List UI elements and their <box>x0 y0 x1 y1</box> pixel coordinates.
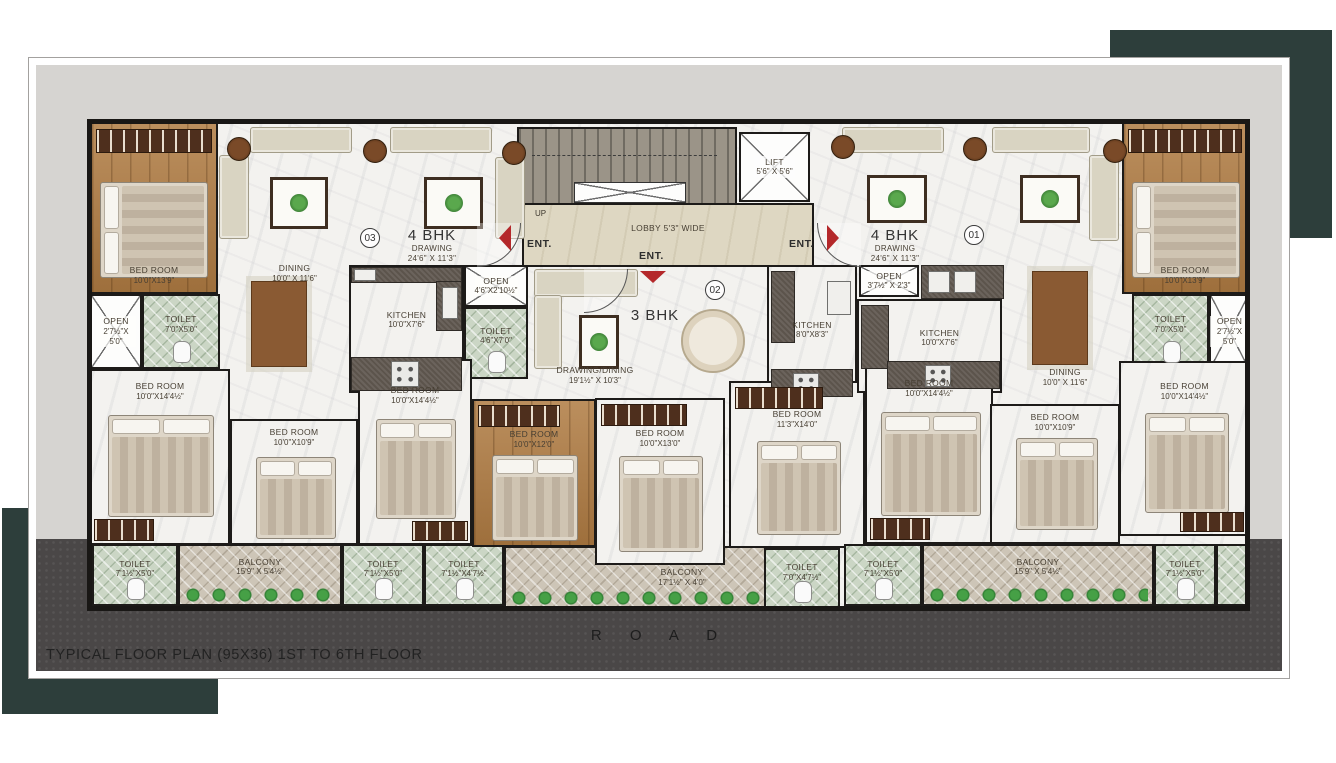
dining-table <box>1032 271 1088 365</box>
open-01-right: OPEN2'7½"X 5'0" <box>1209 294 1250 369</box>
toilet-02-right: TOILET7'0"X4'7½" <box>764 548 840 609</box>
planter-row <box>510 590 766 605</box>
sofa <box>219 155 249 239</box>
up-label: UP <box>535 209 546 218</box>
room-label: BED ROOM10'0"X13'0" <box>597 428 723 449</box>
room-label: BED ROOM10'0"X14'4½" <box>867 378 991 399</box>
balcony-02-label: BALCONY17'1½" X 4'0" <box>627 567 737 588</box>
open-03-mid: OPEN4'6"X2'10½" <box>464 265 528 307</box>
sofa <box>390 127 492 153</box>
toilet-fixture <box>456 578 474 600</box>
room-label: TOILET7'1½"X5'0" <box>864 559 903 580</box>
unit-01-type: 4 BHK DRAWING24'6" X 11'3" <box>850 227 940 265</box>
balcony-03: BALCONY15'9" X 5'4½" <box>178 544 342 606</box>
room-label: OPEN4'6"X2'10½" <box>475 276 518 297</box>
toilet-03-left: TOILET7'0"X5'0" <box>142 294 220 369</box>
room-label: BED ROOM10'0"X14'4½" <box>92 381 228 402</box>
sofa <box>842 127 944 153</box>
room-label: TOILET7'1½"X5'0" <box>116 559 155 580</box>
bed <box>757 441 841 535</box>
toilet-fixture <box>875 578 893 600</box>
lobby-label: LOBBY 5'3" WIDE <box>631 223 705 234</box>
rug <box>1020 175 1080 223</box>
unit-03-number: 03 <box>360 228 380 248</box>
plan-page: R O A D TYPICAL FLOOR PLAN (95X36) 1ST T… <box>28 57 1290 679</box>
room-label: KITCHEN10'0"X7'6" <box>387 310 426 331</box>
lift-label: LIFT5'6" X 5'6" <box>754 156 794 179</box>
toilet-01-top: TOILET7'0"X5'0" <box>1132 294 1209 369</box>
toilet-01-b2: TOILET7'1½"X5'0" <box>1154 544 1216 606</box>
room-label: TOILET7'1½"X5'0" <box>1166 559 1205 580</box>
bedroom-01-top: BED ROOM10'0"X13'9" <box>1122 122 1248 294</box>
side-table <box>963 137 987 161</box>
building: UP LIFT5'6" X 5'6" LOBBY 5'3" WIDE ENT. … <box>87 119 1250 611</box>
stove <box>391 361 419 387</box>
wardrobe <box>1128 129 1242 153</box>
bed <box>1145 413 1229 513</box>
planter-row <box>184 587 336 602</box>
side-table <box>831 135 855 159</box>
room-label: TOILET7'0"X5'0" <box>1155 314 1187 335</box>
sofa <box>534 295 562 369</box>
toilet-fixture <box>488 351 506 373</box>
side-table <box>227 137 251 161</box>
sofa <box>992 127 1090 153</box>
bed <box>881 412 981 516</box>
bedroom-01-right: BED ROOM10'0"X14'4½" <box>1119 361 1250 536</box>
toilet-fixture <box>127 578 145 600</box>
bedroom-01-mid: BED ROOM10'0"X10'9" <box>990 404 1120 544</box>
bed <box>376 419 456 519</box>
unit-03-type: 4 BHK DRAWING24'6" X 11'3" <box>387 227 477 265</box>
entrance-label-right: ENT. <box>789 238 814 250</box>
entrance-arrow-unit02 <box>640 271 666 283</box>
bedroom-02-right: BED ROOM11'3"X14'0" <box>729 381 865 548</box>
bedroom-03-mid: BED ROOM10'0"X10'9" <box>230 419 358 545</box>
wardrobe <box>1180 512 1244 532</box>
entrance-label-center: ENT. <box>639 250 664 262</box>
fridge <box>354 269 376 281</box>
toilet-fixture <box>173 341 191 363</box>
room-label: TOILET7'0"X5'0" <box>165 314 197 335</box>
stair-landing <box>574 182 686 203</box>
bed <box>492 455 578 541</box>
rug <box>867 175 927 223</box>
side-table <box>1103 139 1127 163</box>
sink <box>442 287 458 319</box>
rug <box>270 177 328 229</box>
bed <box>108 415 214 517</box>
lobby: LOBBY 5'3" WIDE <box>522 203 814 267</box>
kitchen-03: KITCHEN10'0"X7'6" <box>349 265 464 393</box>
toilet-fixture <box>794 581 812 603</box>
toilet-01-b2-extension <box>1216 544 1250 606</box>
room-label: BED ROOM10'0"X10'9" <box>232 427 356 448</box>
wardrobe <box>601 404 687 426</box>
bedroom-03-center: BED ROOM10'0"X14'4½" <box>358 359 472 545</box>
lift: LIFT5'6" X 5'6" <box>739 132 810 202</box>
bedroom-03-top: BED ROOM10'0"X13'9" <box>90 122 218 294</box>
open-03-left: OPEN2'7½"X 5'0" <box>90 294 142 369</box>
room-label: BED ROOM10'0"X14'4½" <box>1121 381 1248 402</box>
room-label: TOILET4'6"X7'0" <box>480 326 512 347</box>
room-label: BED ROOM11'3"X14'0" <box>731 409 863 430</box>
room-label: BED ROOM10'0"X14'4½" <box>360 385 470 406</box>
room-label: BED ROOM10'0"X12'0" <box>474 429 594 450</box>
wardrobe <box>412 521 468 541</box>
sink <box>928 271 950 293</box>
wardrobe <box>94 519 154 541</box>
bedroom-01-left: BED ROOM10'0"X14'4½" <box>865 366 993 544</box>
toilet-fixture <box>375 578 393 600</box>
unit-02-number: 02 <box>705 280 725 300</box>
page-title: TYPICAL FLOOR PLAN (95X36) 1ST TO 6TH FL… <box>46 647 423 663</box>
entrance-label-left: ENT. <box>527 238 552 250</box>
toilet-03-b2: TOILET7'1½"X5'0" <box>342 544 424 606</box>
bedroom-02-left: BED ROOM10'0"X12'0" <box>472 399 596 547</box>
wardrobe <box>870 518 930 540</box>
toilet-fixture <box>1177 578 1195 600</box>
side-table <box>363 139 387 163</box>
room-label: KITCHEN10'0"X7'6" <box>920 328 959 349</box>
room-label: TOILET7'1½"X5'0" <box>364 559 403 580</box>
toilet-03-b1: TOILET7'1½"X5'0" <box>92 544 178 606</box>
room-label: BALCONY15'9" X 5'4½" <box>1014 557 1061 578</box>
toilet-03-mid: TOILET4'6"X7'0" <box>464 307 528 379</box>
bed <box>1016 438 1098 530</box>
toilet-01-b1: TOILET7'1½"X5'0" <box>844 544 922 606</box>
wardrobe <box>96 129 212 153</box>
room-label: KITCHEN8'0"X8'3" <box>792 320 831 341</box>
room-label: TOILET7'0"X4'7½" <box>783 562 822 583</box>
side-table <box>502 141 526 165</box>
rug <box>424 177 483 229</box>
open-02: OPEN3'7½" X 2'3" <box>859 265 919 297</box>
room-label: OPEN2'7½"X 5'0" <box>96 316 136 347</box>
toilet-02-left: TOILET7'1½"X4'7½" <box>424 544 504 606</box>
toilet-fixture <box>1163 341 1181 363</box>
room-label: TOILET7'1½"X4'7½" <box>441 559 486 580</box>
sink <box>827 281 851 315</box>
entrance-arrow-right <box>827 225 839 251</box>
floor-plan-sheet: R O A D TYPICAL FLOOR PLAN (95X36) 1ST T… <box>0 0 1336 763</box>
room-label: OPEN3'7½" X 2'3" <box>868 271 911 292</box>
sofa <box>250 127 352 153</box>
bed <box>100 182 208 278</box>
stair-direction-line <box>532 155 717 156</box>
kitchen-counter <box>861 305 889 369</box>
wardrobe <box>735 387 823 409</box>
sofa <box>1089 155 1119 241</box>
kitchen-02: KITCHEN8'0"X8'3" <box>767 265 857 401</box>
room-label: BED ROOM10'0"X13'9" <box>92 265 216 286</box>
dining-03-label: DINING10'0" X 11'6" <box>237 263 352 284</box>
room-label: BALCONY15'9" X 5'4½" <box>236 557 283 578</box>
bedroom-02-mid: BED ROOM10'0"X13'0" <box>595 398 725 565</box>
kitchen-counter <box>921 265 1004 299</box>
balcony-01: BALCONY15'9" X 5'4½" <box>922 544 1154 606</box>
drawing-dining-02-label: DRAWING/DINING19'1½" X 10'3" <box>539 365 651 386</box>
dining-01-label: DINING10'0" X 11'6" <box>1009 367 1121 388</box>
entrance-arrow-left <box>499 225 511 251</box>
bed <box>256 457 336 539</box>
wardrobe <box>478 405 560 427</box>
rug <box>579 315 619 369</box>
planter-row <box>928 587 1148 602</box>
dining-table <box>251 281 307 367</box>
room-label: BED ROOM10'0"X13'9" <box>1124 265 1246 286</box>
unit-02-type: 3 BHK <box>615 307 695 324</box>
bed <box>619 456 703 552</box>
room-label: OPEN2'7½"X 5'0" <box>1210 316 1250 347</box>
road-label: R O A D <box>36 627 1282 644</box>
bedroom-03-left: BED ROOM10'0"X14'4½" <box>90 369 230 545</box>
sink <box>954 271 976 293</box>
room-label: BED ROOM10'0"X10'9" <box>992 412 1118 433</box>
bed <box>1132 182 1240 278</box>
plan-content: R O A D TYPICAL FLOOR PLAN (95X36) 1ST T… <box>36 65 1282 671</box>
unit-01-number: 01 <box>964 225 984 245</box>
